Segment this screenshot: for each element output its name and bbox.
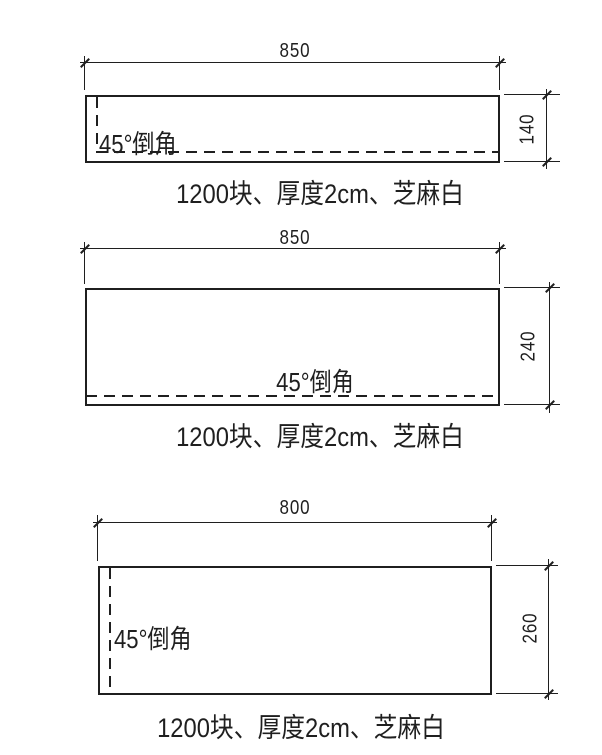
dimension-tick xyxy=(93,518,103,528)
dimension-tick xyxy=(544,561,554,571)
height-dimension-label: 260 xyxy=(520,613,543,644)
drawing-canvas: 850 45°倒角 140 1200块、厚度2cm、芝麻白 850 xyxy=(0,0,602,755)
height-dimension-line xyxy=(548,559,549,700)
dimension-tick xyxy=(487,518,497,528)
extension-line xyxy=(97,515,98,561)
width-dimension-line xyxy=(93,522,497,523)
width-dimension-label: 800 xyxy=(280,497,311,520)
dimension-tick xyxy=(544,689,554,699)
chamfer-label: 45°倒角 xyxy=(114,619,192,656)
chamfer-dashed-line-left xyxy=(109,568,111,693)
panel-drawing-3: 800 45°倒角 260 1200块、厚度2cm、芝麻白 xyxy=(0,0,602,755)
extension-line xyxy=(491,515,492,561)
panel-caption: 1200块、厚度2cm、芝麻白 xyxy=(36,706,566,745)
